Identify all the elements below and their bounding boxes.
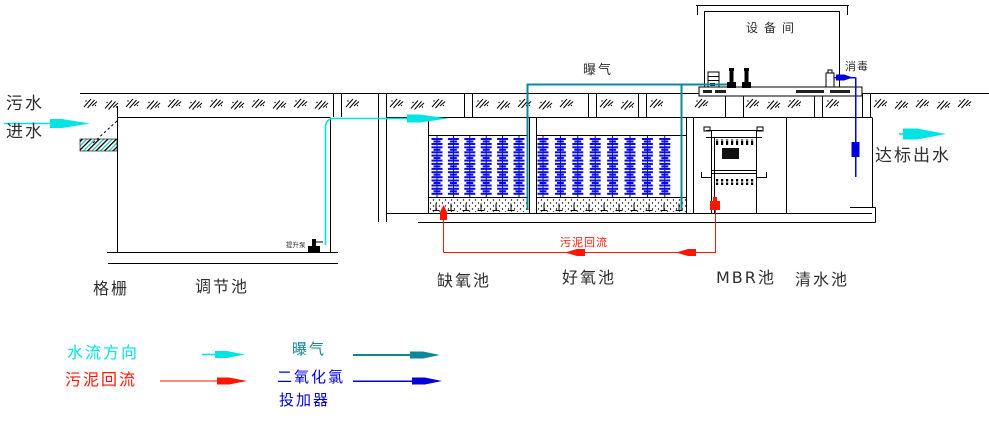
legend-clo2-label-line2: 投加器 <box>279 393 330 408</box>
equipment-room-label: 设备间 <box>746 22 800 34</box>
diagram-linework <box>0 0 989 424</box>
blower-2 <box>742 68 751 88</box>
bio-media-racks <box>432 135 671 197</box>
membrane-cassette-bottom <box>716 179 755 185</box>
legend-aeration-label: 曝气 <box>292 342 326 357</box>
lift-pump <box>308 239 323 252</box>
inflow-label-line2: 进水 <box>6 124 44 141</box>
dosing-tank <box>826 70 834 87</box>
mbr-module <box>701 127 767 213</box>
legend-sludge-return-arrow <box>160 378 247 385</box>
effluent-arrow <box>899 129 946 140</box>
sludge-return-inline-label: 污泥回流 <box>560 237 608 248</box>
membrane-cassette-top <box>716 139 755 145</box>
process-flow-diagram: 污水 进水 格栅 调节池 提升泵 缺氧池 好氧池 MBR池 清水池 设备间 曝气… <box>0 0 989 424</box>
clear-tank-label: 清水池 <box>795 272 849 288</box>
disinfection-label: 消毒 <box>845 61 869 72</box>
clo2-doser <box>852 142 860 157</box>
mbr-tank-label: MBR池 <box>716 270 776 286</box>
effluent-label: 达标出水 <box>875 148 951 165</box>
aeration-top-label: 曝气 <box>583 64 613 77</box>
legend-water-flow-label: 水流方向 <box>67 345 139 361</box>
legend-clo2-arrow <box>353 378 442 385</box>
mbr-nameplate <box>722 148 739 159</box>
screen-label: 格栅 <box>93 281 129 297</box>
inlet-screen <box>80 121 117 151</box>
lift-pump-label: 提升泵 <box>286 242 306 249</box>
inflow-label-line1: 污水 <box>6 96 44 113</box>
anoxic-tank-label: 缺氧池 <box>437 273 491 289</box>
regulating-tank <box>107 106 338 264</box>
legend-water-flow-arrow <box>202 351 245 358</box>
blower-1 <box>727 68 736 88</box>
aerobic-tank-label: 好氧池 <box>562 270 616 286</box>
legend-sludge-return-label: 污泥回流 <box>65 372 137 388</box>
legend-aeration-arrow <box>353 352 440 359</box>
regulating-tank-label: 调节池 <box>195 279 249 295</box>
legend-clo2-label-line1: 二氧化氯 <box>277 370 345 385</box>
